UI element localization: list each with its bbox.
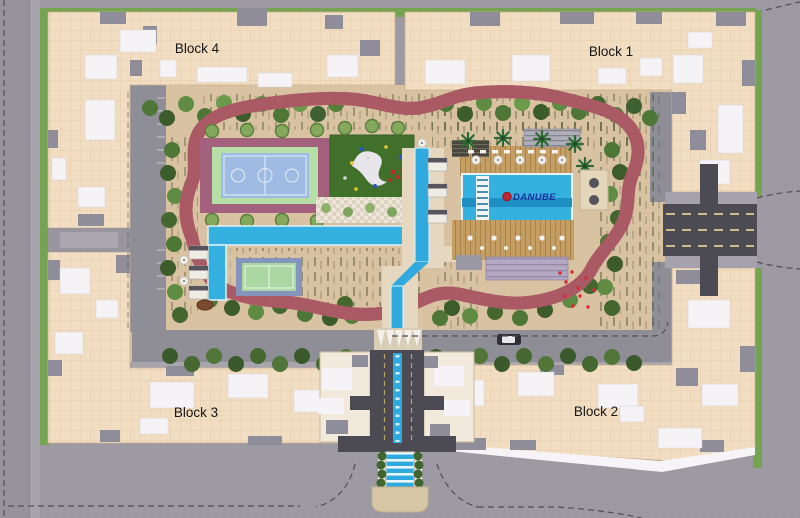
trellis	[472, 140, 489, 157]
entrance-water-cascade	[372, 452, 428, 513]
padel-court	[236, 258, 302, 296]
east-entrance-road	[663, 204, 757, 256]
kids-playground	[316, 120, 416, 224]
planter	[197, 300, 213, 310]
block-3-label: Block 3	[174, 405, 218, 420]
block-1-label: Block 1	[589, 44, 633, 59]
block-4-label: Block 4	[175, 41, 220, 56]
west-sidewalk	[30, 0, 40, 518]
basketball-court	[200, 124, 330, 228]
sunken-seating	[486, 257, 568, 280]
block-2-label: Block 2	[574, 404, 618, 419]
leisure-pool: DANUBE	[462, 174, 572, 223]
master-plan: DANUBE	[0, 0, 800, 518]
brand-logo-dot	[503, 192, 511, 200]
equipment-box	[456, 255, 482, 270]
pool-brand-label: DANUBE	[513, 192, 556, 203]
